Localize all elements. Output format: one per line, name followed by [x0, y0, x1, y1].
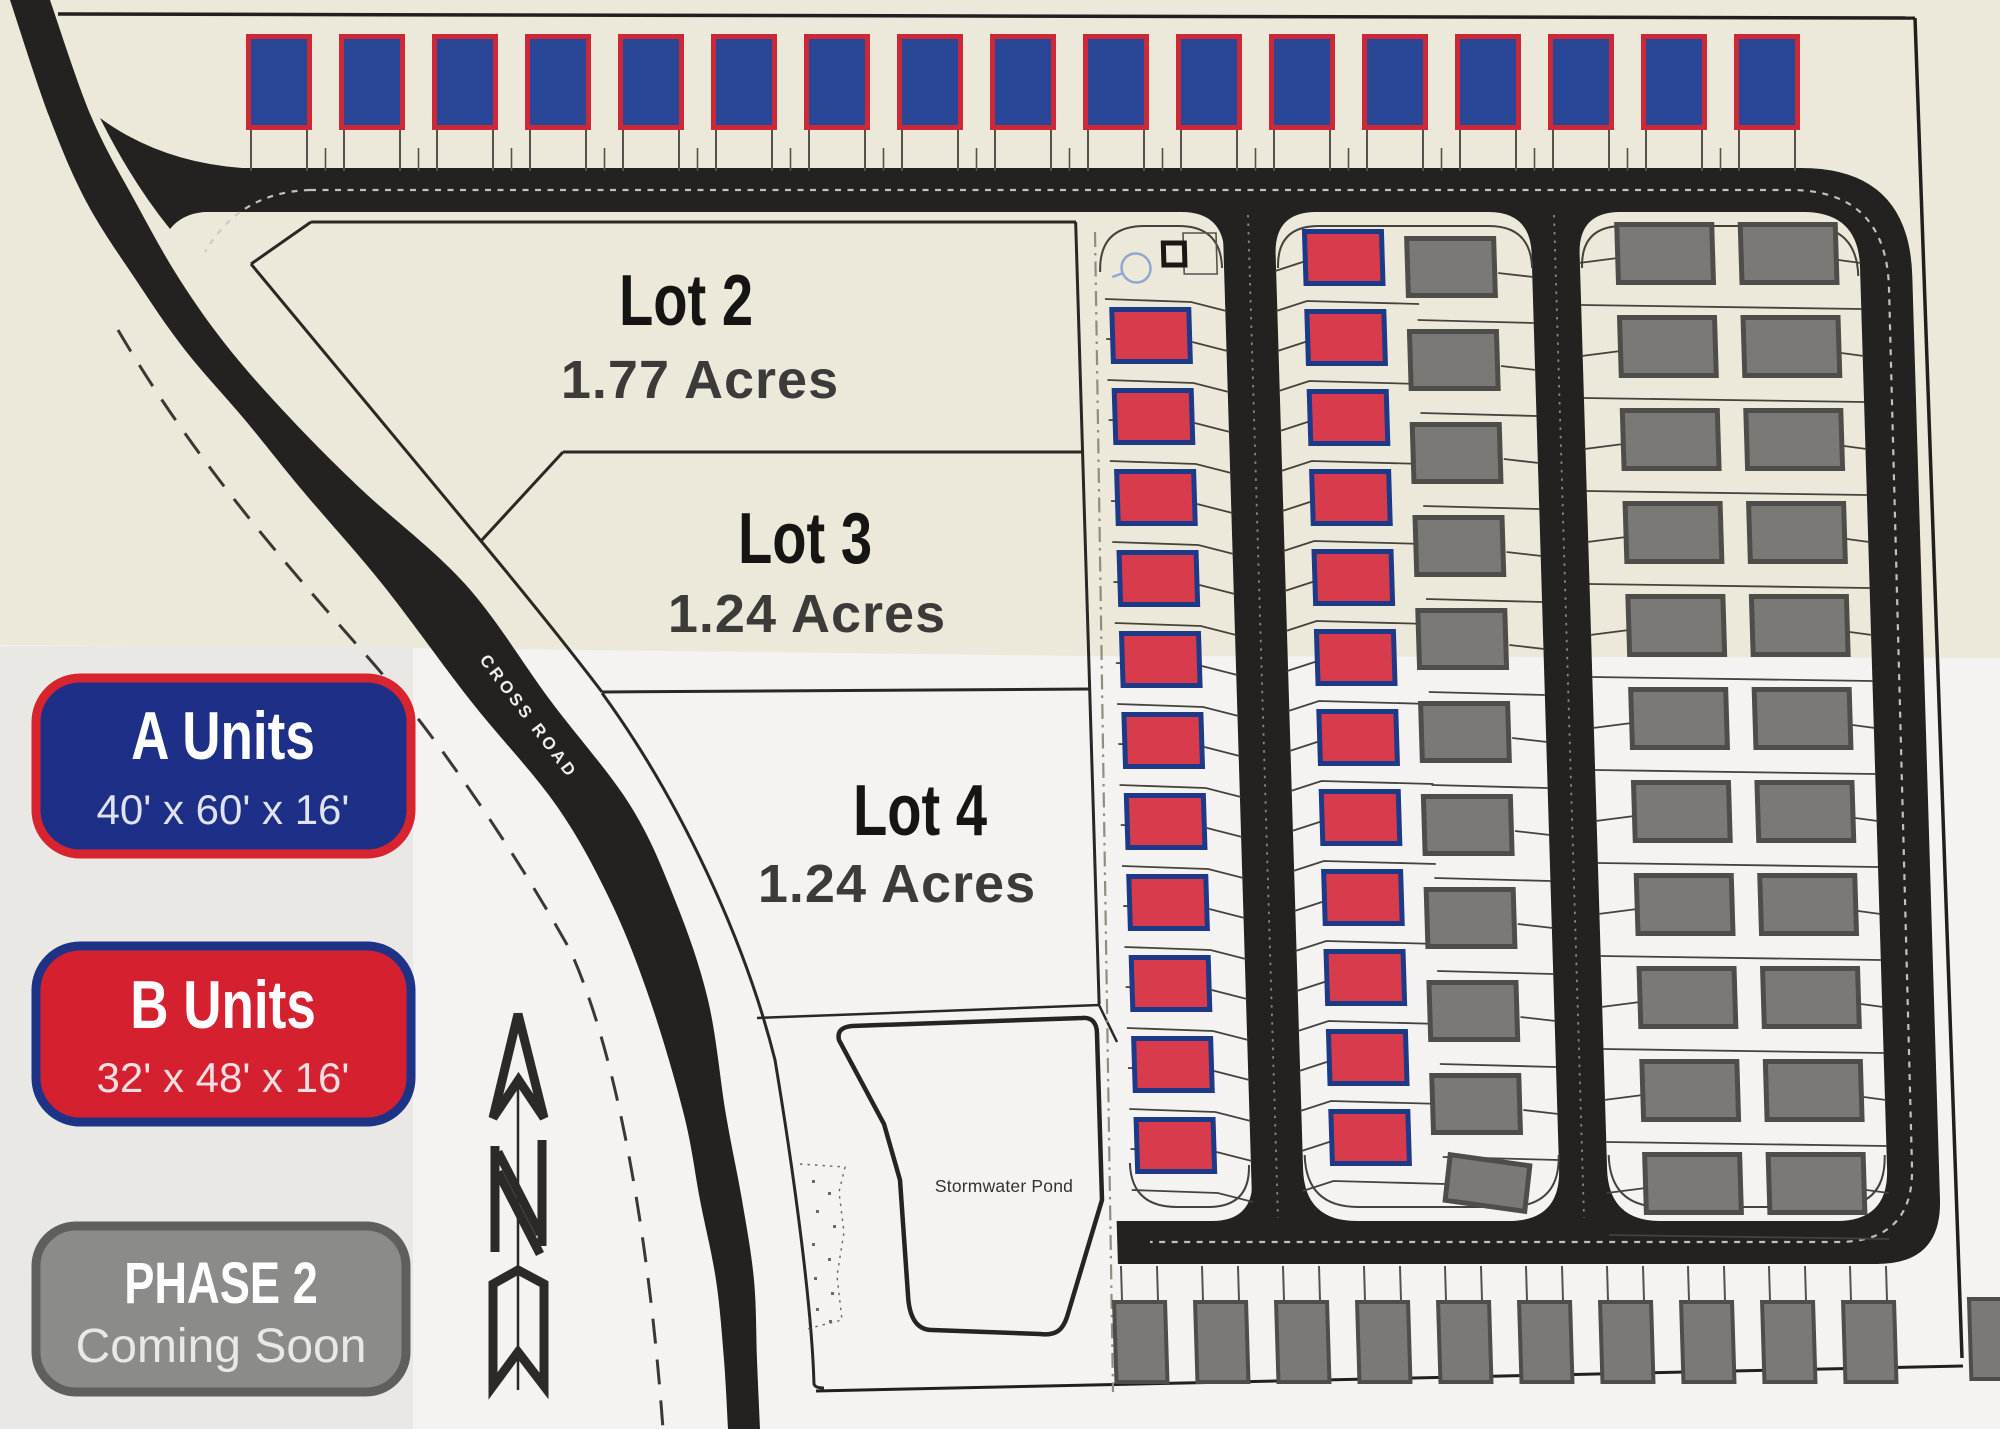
svg-text:Lot 4: Lot 4	[853, 770, 987, 850]
svg-text:1.77 Acres: 1.77 Acres	[561, 350, 839, 410]
svg-text:Lot 2: Lot 2	[619, 260, 753, 340]
svg-text:Coming Soon: Coming Soon	[76, 1320, 367, 1373]
svg-text:PHASE 2: PHASE 2	[124, 1252, 318, 1317]
svg-text:40' x 60' x 16': 40' x 60' x 16'	[97, 786, 350, 833]
svg-text:1.24 Acres: 1.24 Acres	[758, 854, 1036, 914]
svg-text:A Units: A Units	[131, 698, 315, 774]
svg-text:32' x 48' x 16': 32' x 48' x 16'	[97, 1054, 350, 1101]
svg-text:1.24 Acres: 1.24 Acres	[668, 584, 946, 644]
svg-text:B Units: B Units	[130, 967, 316, 1043]
svg-text:Lot 3: Lot 3	[738, 498, 872, 578]
svg-text:Stormwater Pond: Stormwater Pond	[935, 1176, 1073, 1196]
